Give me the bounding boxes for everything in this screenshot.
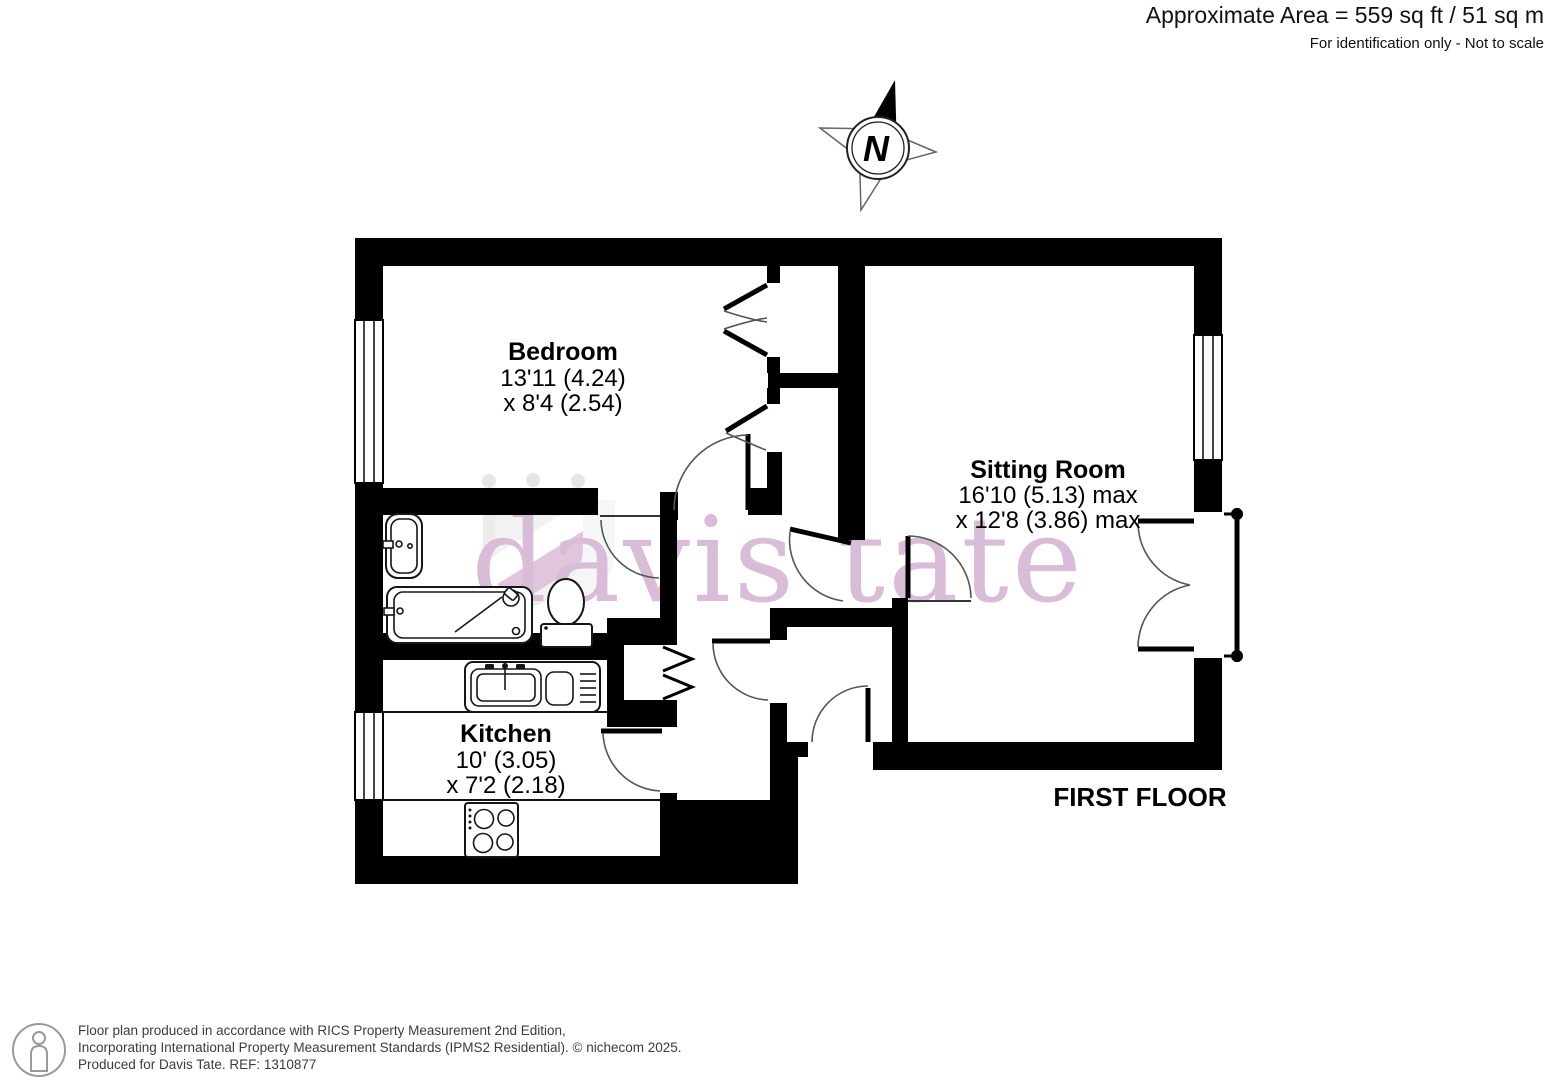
sitting-room-dim2: x 12'8 (3.86) max (956, 507, 1141, 534)
footer-line-1: Floor plan produced in accordance with R… (78, 1022, 682, 1039)
stove-hob (465, 803, 518, 857)
entrance-jamb (798, 742, 808, 757)
closet1-jamb-bottom (767, 357, 780, 373)
wall-sitting-west (838, 266, 865, 540)
wall-outer-bottom (355, 856, 798, 884)
kitchen-door (601, 731, 662, 791)
wall-cupboard-west (607, 645, 624, 700)
french-doors (1138, 512, 1222, 658)
lobby-jamb-top (770, 627, 787, 640)
wall-kitchen-east-lower (660, 793, 677, 856)
wall-hall-south-mass (677, 800, 770, 856)
wall-cupboard-south (607, 700, 677, 727)
bedroom-dim1: 13'11 (4.24) (500, 365, 626, 392)
floorplan-canvas: davis tate (0, 0, 1552, 1080)
wall-step (770, 742, 798, 884)
wall-closet-divider (768, 373, 850, 388)
sitting-room-dim1: 16'10 (5.13) max (958, 482, 1137, 509)
kitchen-label: Kitchen (460, 720, 552, 748)
wall-lobby-east (892, 598, 908, 742)
lobby-door (712, 641, 770, 700)
wall-hall-jog (770, 608, 893, 627)
wall-cupboard-north (607, 618, 677, 645)
lobby-jamb-bottom (770, 703, 787, 742)
bathtub (384, 587, 532, 643)
sitting-room-window (1194, 335, 1222, 460)
footer-line-2: Incorporating International Property Mea… (78, 1039, 682, 1056)
wash-basin (383, 514, 422, 578)
bedroom-window (355, 320, 383, 483)
balcony-rail (1224, 508, 1243, 662)
footer-line-3: Produced for Davis Tate. REF: 1310877 (78, 1056, 682, 1073)
wall-bedroom-south-a (383, 488, 598, 515)
wall-bedroom-south-b (748, 488, 782, 515)
kitchen-dim2: x 7'2 (2.18) (446, 772, 565, 799)
closet2-jamb-top (767, 388, 780, 404)
kitchen-dim1: 10' (3.05) (456, 747, 557, 774)
approximate-area-text: Approximate Area = 559 sq ft / 51 sq m (1146, 2, 1544, 29)
footer-disclaimer: Floor plan produced in accordance with R… (78, 1022, 682, 1073)
cupboard-bifold-door (663, 647, 692, 699)
wall-bathroom-east (660, 520, 677, 618)
kitchen-window (355, 712, 383, 800)
wall-outer-top (355, 238, 1222, 266)
entrance-door (812, 686, 868, 742)
closet-door-1 (724, 285, 767, 355)
closet2-wall-bottom (767, 452, 782, 488)
compass-north-label: N (863, 128, 890, 169)
wall-sitting-bottom (873, 742, 1222, 770)
header: Approximate Area = 559 sq ft / 51 sq m F… (1146, 2, 1544, 52)
identification-note-text: For identification only - Not to scale (1146, 35, 1544, 52)
closet1-jamb-top (767, 266, 780, 283)
person-scale-icon (10, 1021, 70, 1081)
bedroom-label: Bedroom (508, 338, 618, 366)
compass-rose-icon: N (820, 80, 936, 210)
wall-outer-right (1194, 238, 1222, 770)
bedroom-dim2: x 8'4 (2.54) (503, 390, 622, 417)
floor-label: FIRST FLOOR (1053, 782, 1227, 812)
kitchen-sink (465, 662, 600, 712)
sitting-room-label: Sitting Room (970, 456, 1126, 484)
